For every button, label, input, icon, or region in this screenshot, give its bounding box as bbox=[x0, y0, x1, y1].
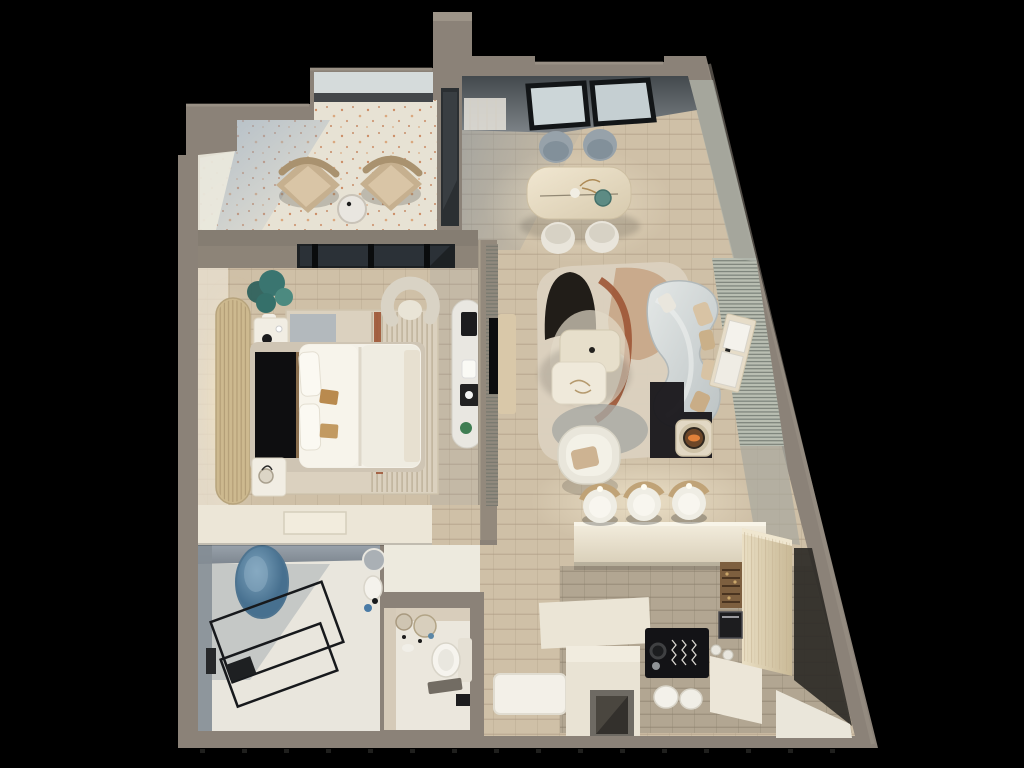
balcony-window-sill bbox=[314, 93, 433, 102]
burner bbox=[651, 644, 665, 658]
dining-chair-gray bbox=[539, 131, 573, 163]
floorplan-render bbox=[0, 0, 1024, 768]
toilet-room bbox=[384, 608, 472, 730]
bar-stool bbox=[626, 484, 662, 525]
flame bbox=[688, 435, 700, 442]
bedroom bbox=[198, 230, 482, 515]
cooktop-counter bbox=[645, 628, 709, 678]
balcony bbox=[198, 72, 437, 232]
toilet-sink bbox=[402, 644, 414, 652]
toilet-top-wall bbox=[384, 592, 478, 608]
tall-pantry bbox=[742, 528, 792, 676]
dining-chair-white bbox=[585, 221, 619, 253]
nightstand-bottom bbox=[252, 458, 286, 496]
bar-stool bbox=[582, 486, 618, 526]
toilet-right-wall bbox=[470, 592, 484, 738]
dining-chair-white bbox=[541, 222, 575, 254]
teal-bowl bbox=[595, 190, 611, 206]
fire-bowl-table bbox=[676, 420, 712, 456]
shower-head bbox=[206, 648, 216, 674]
dining-table bbox=[527, 167, 631, 219]
round-mirror bbox=[396, 614, 412, 630]
bed bbox=[250, 342, 425, 472]
corridor-floor bbox=[384, 545, 480, 592]
bedroom-window bbox=[297, 244, 455, 268]
bed-tray bbox=[320, 423, 339, 438]
round-mirror bbox=[363, 549, 385, 571]
wall-top-face bbox=[433, 12, 472, 21]
desk-plant bbox=[460, 422, 472, 434]
counter-tray bbox=[284, 512, 346, 534]
bar-stools bbox=[582, 483, 707, 526]
balcony-window-glass bbox=[314, 72, 433, 95]
white-doormat bbox=[494, 674, 566, 714]
bed-tray bbox=[319, 389, 339, 405]
bar-stool bbox=[671, 483, 707, 524]
dining-chair-gray bbox=[583, 129, 617, 161]
oven bbox=[719, 612, 742, 638]
slatted-headboard-panel bbox=[216, 298, 250, 504]
bathroom bbox=[198, 545, 385, 731]
balcony-side-table bbox=[338, 195, 366, 223]
pillow bbox=[298, 351, 321, 396]
lounge-chair bbox=[558, 426, 620, 496]
black-towel-box bbox=[456, 694, 470, 706]
bedroom-window-wall bbox=[198, 230, 478, 246]
curved-accent-chair bbox=[387, 283, 433, 320]
vanity-desk bbox=[452, 300, 482, 448]
wine-rack bbox=[720, 562, 742, 608]
black-headboard bbox=[255, 352, 299, 458]
tv-console bbox=[498, 314, 516, 414]
floorplan-scene bbox=[0, 0, 1024, 768]
tv-screen bbox=[489, 318, 498, 394]
foot-bench bbox=[404, 350, 420, 462]
entry-cabinet bbox=[539, 597, 651, 649]
pillow bbox=[299, 404, 321, 451]
